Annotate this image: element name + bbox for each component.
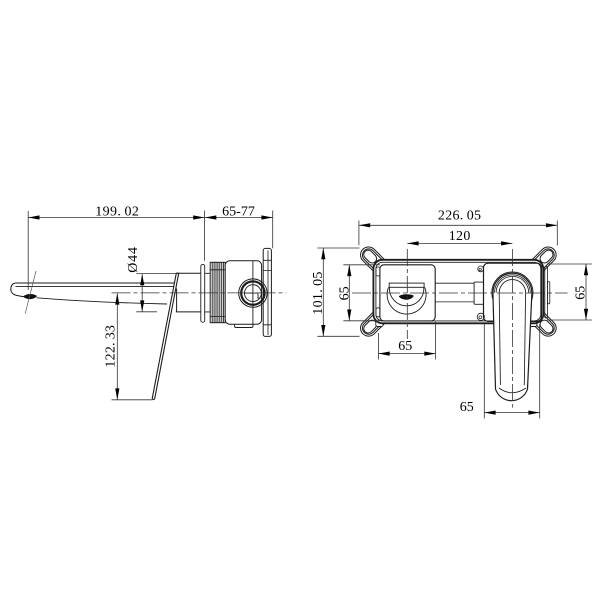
svg-text:199. 02: 199. 02: [95, 205, 139, 220]
svg-text:65: 65: [573, 286, 588, 300]
svg-text:226. 05: 226. 05: [438, 209, 481, 224]
svg-text:65: 65: [398, 339, 412, 354]
svg-text:65: 65: [338, 286, 353, 300]
svg-text:122. 33: 122. 33: [104, 325, 119, 368]
svg-text:65: 65: [460, 400, 474, 415]
svg-text:120: 120: [449, 229, 471, 244]
svg-text:65-77: 65-77: [222, 205, 255, 220]
svg-text:101. 05: 101. 05: [311, 271, 326, 314]
svg-text:Ø44: Ø44: [126, 246, 141, 273]
